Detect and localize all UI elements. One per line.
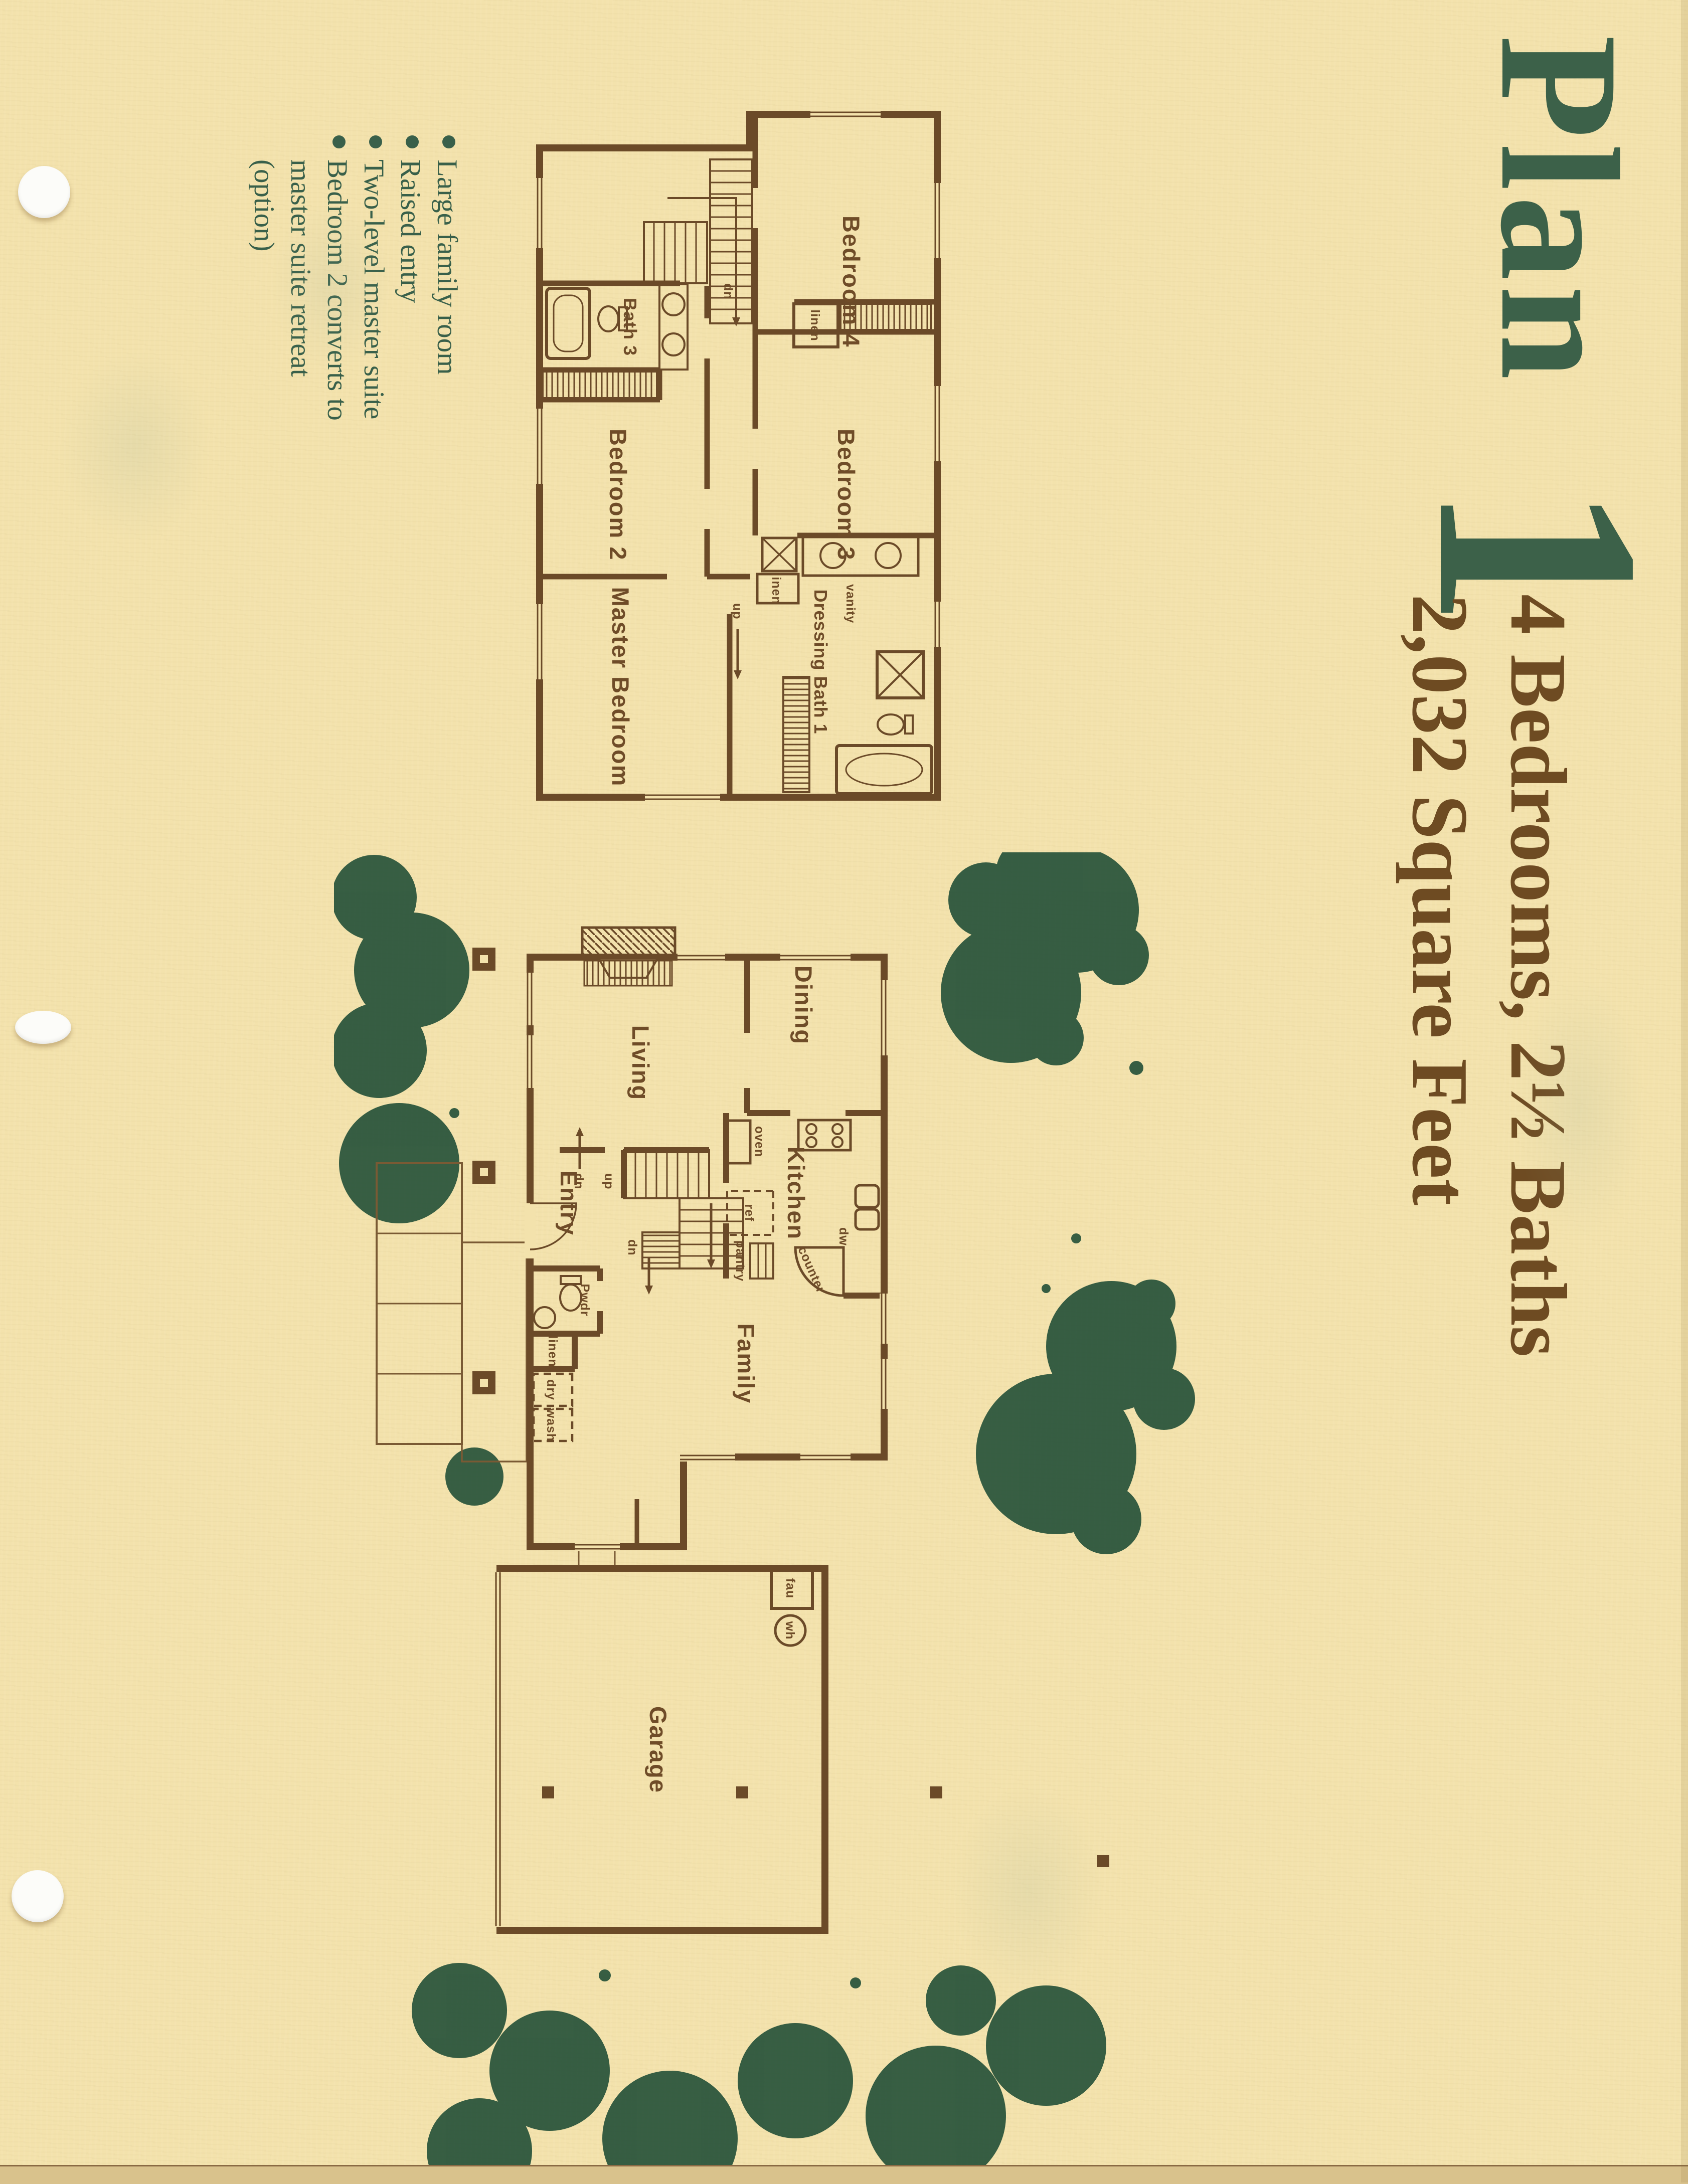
room-label-entry: Entry <box>556 1171 582 1236</box>
room-label-pwdr: Pwdr <box>578 1284 592 1316</box>
dry-label: dry <box>544 1379 558 1400</box>
porch-slab <box>462 1242 527 1462</box>
subtitle-line-sqft: 2,032 Square Feet <box>1391 594 1489 1357</box>
punch-hole-icon <box>18 166 70 218</box>
cooktop-icon <box>798 1120 851 1150</box>
linen-label: linen <box>769 573 783 604</box>
ref-label: ref <box>742 1204 756 1222</box>
vanity-label: vanity <box>843 584 858 623</box>
room-label-dressing-bath1: Dressing Bath 1 <box>810 589 831 734</box>
subtitle-line-beds-baths: 4 Bedrooms, 2½ Baths <box>1489 594 1588 1357</box>
punch-hole-icon <box>12 1870 64 1922</box>
sink-icon <box>856 1209 879 1229</box>
powder-room-fixtures <box>534 1276 581 1328</box>
room-label-master-bedroom: Master Bedroom <box>607 587 634 787</box>
up-arrow-head-icon <box>707 1259 715 1268</box>
feature-text: Raised entry <box>395 159 426 303</box>
window-icon <box>526 953 889 1551</box>
dw-label: dw <box>836 1227 851 1246</box>
oven-label: oven <box>752 1126 766 1157</box>
page-title: Plan <box>1474 35 1644 385</box>
porch-post-icon <box>472 948 495 1394</box>
dn-label: dn <box>721 283 735 300</box>
master-closet-hatch-icon <box>783 677 809 792</box>
up-arrow-head-icon <box>734 670 742 679</box>
garage-door-icon <box>496 1572 500 1926</box>
print-showthrough <box>953 1785 1103 1995</box>
plan-subtitle: 4 Bedrooms, 2½ Baths 2,032 Square Feet <box>1391 594 1588 1357</box>
linen-label: linen <box>808 309 822 341</box>
page-edge-shade <box>1681 0 1688 2182</box>
bullet-icon <box>369 135 382 148</box>
sink-icon <box>856 1185 879 1207</box>
up-label: up <box>730 603 744 620</box>
oven-icon <box>727 1121 750 1163</box>
sink-icon <box>662 333 685 355</box>
feature-item: Large family room <box>429 134 465 455</box>
page-edge <box>0 2165 1688 2184</box>
wash-label: wash <box>544 1408 558 1442</box>
bath3-fixtures <box>547 284 688 370</box>
room-label-bedroom4: Bedroom 4 <box>838 216 865 348</box>
linen-label: linen <box>546 1335 560 1367</box>
room-label-bedroom2: Bedroom 2 <box>605 429 631 561</box>
print-showthrough <box>271 201 391 371</box>
room-label-family: Family <box>733 1324 759 1404</box>
fau-label: fau <box>783 1578 797 1599</box>
up-label: up <box>602 1173 616 1190</box>
toilet-icon <box>561 1276 581 1284</box>
tub-icon <box>836 746 932 794</box>
punch-hole-icon <box>15 1011 71 1044</box>
brochure-sheet: Plan 1 4 Bedrooms, 2½ Baths 2,032 Square… <box>0 0 1688 2182</box>
fireplace-icon <box>582 928 675 986</box>
pantry-label: pantry <box>733 1240 747 1282</box>
sink-icon <box>534 1307 555 1328</box>
bullet-icon <box>406 135 419 148</box>
vanity-counter <box>659 284 688 370</box>
pantry-shelves-icon <box>750 1243 773 1279</box>
feature-text: Large family room <box>431 159 463 375</box>
room-label-bedroom3: Bedroom 3 <box>833 429 860 561</box>
room-label-bath3: Bath 3 <box>620 298 640 356</box>
bullet-icon <box>442 135 455 148</box>
sink-icon <box>876 543 901 568</box>
room-label-living: Living <box>627 1025 654 1101</box>
print-showthrough <box>1514 978 1645 1238</box>
room-label-kitchen: Kitchen <box>783 1147 809 1240</box>
room-label-garage: Garage <box>645 1706 671 1793</box>
dn-label: dn <box>625 1239 639 1256</box>
sink-icon <box>662 293 685 315</box>
upper-floor-plan: linen linen dn up Bath 3 <box>535 108 941 805</box>
tree-icon <box>334 852 1195 2182</box>
main-floor-plan: oven ref pantry dw counter up dn dn <box>334 852 1197 2182</box>
feature-item: Raised entry <box>392 134 429 455</box>
room-label-dining: Dining <box>790 966 817 1045</box>
wh-label: wh <box>783 1621 797 1640</box>
closet-hatch-icon <box>543 372 657 398</box>
toilet-icon <box>905 715 913 734</box>
bullet-icon <box>332 135 346 148</box>
print-showthrough <box>60 351 211 541</box>
